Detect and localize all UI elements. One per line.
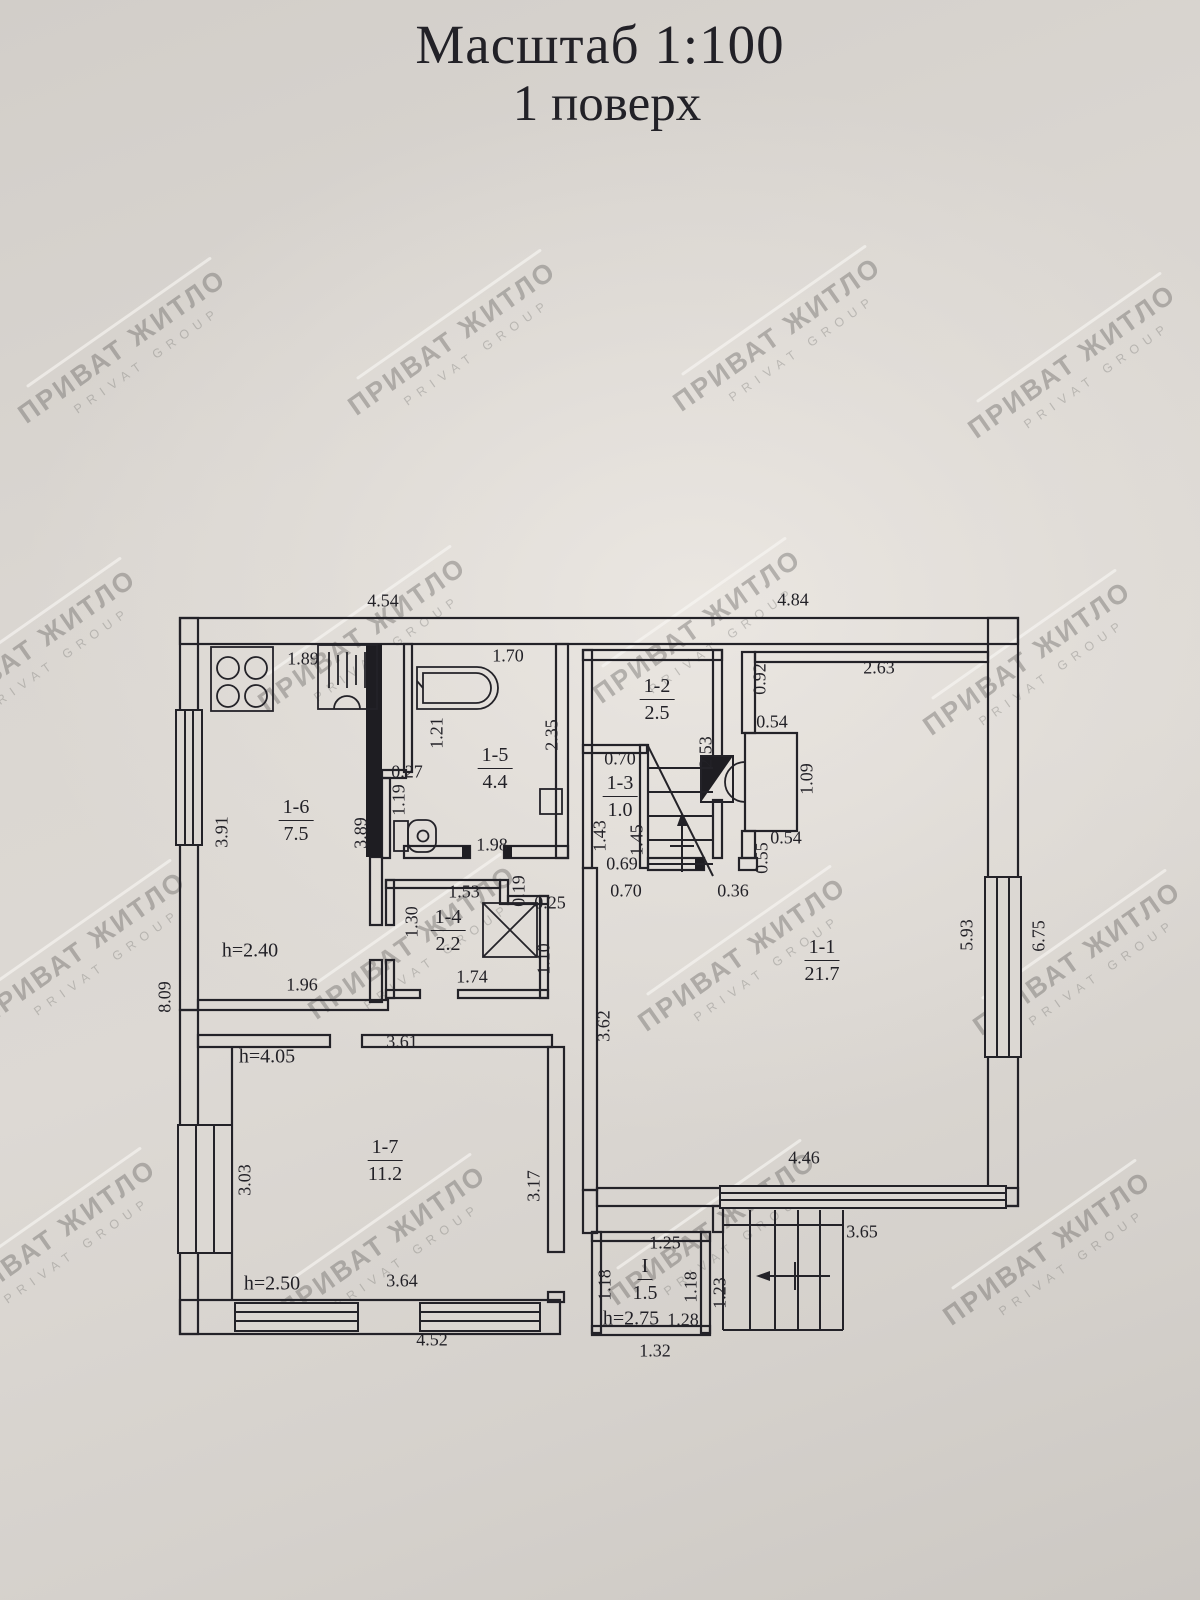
bathtub-icon xyxy=(417,667,498,709)
window-room7-west xyxy=(178,1125,232,1253)
dimension-label: 4.54 xyxy=(367,591,399,612)
room-area: 21.7 xyxy=(805,961,840,986)
dimension-label: 2.35 xyxy=(542,719,563,751)
dimension-label: 3.03 xyxy=(235,1164,256,1196)
ceiling-height-label: h=4.05 xyxy=(239,1046,295,1069)
dimension-label: 4.46 xyxy=(788,1148,820,1169)
room-number: 1-7 xyxy=(368,1136,403,1161)
dimension-label: 3.17 xyxy=(524,1170,545,1202)
dimension-label: 4.52 xyxy=(416,1330,448,1351)
dimension-label: 0.36 xyxy=(717,881,749,902)
floor-plan-drawing xyxy=(0,0,1200,1600)
window-room7-south-left xyxy=(235,1303,358,1331)
dimension-label: 3.64 xyxy=(386,1271,418,1292)
dimension-label: 1.19 xyxy=(389,784,410,816)
dimension-label: 1.89 xyxy=(287,649,319,670)
dimension-label: 0.70 xyxy=(604,749,636,770)
dimension-label: 6.75 xyxy=(1029,920,1050,952)
room-number: 1-2 xyxy=(640,675,675,700)
room-number: 1-3 xyxy=(603,772,638,797)
dimension-label: 1.98 xyxy=(476,835,508,856)
dimension-label: 0.55 xyxy=(752,842,773,874)
room-label: 1-42.2 xyxy=(431,906,466,956)
ceiling-height-label: h=2.50 xyxy=(244,1273,300,1296)
room-number: 1-6 xyxy=(279,796,314,821)
room-number: 1-4 xyxy=(431,906,466,931)
dimension-label: 1.21 xyxy=(427,717,448,749)
dimension-label: 0.54 xyxy=(756,712,788,733)
entry-direction-arrow xyxy=(756,1271,770,1281)
dimension-label: 1.30 xyxy=(402,906,423,938)
dimension-label: 1.74 xyxy=(456,967,488,988)
dimension-label: 1.28 xyxy=(667,1310,699,1331)
room-label: 1-711.2 xyxy=(368,1136,403,1186)
dimension-label: 0.69 xyxy=(606,854,638,875)
room-area: 4.4 xyxy=(478,769,513,794)
dimension-label: 1.96 xyxy=(286,975,318,996)
ceiling-height-label: h=2.75 xyxy=(603,1308,659,1331)
dimension-label: 3.61 xyxy=(386,1032,418,1053)
room-area: 2.5 xyxy=(640,700,675,725)
window-room1-south xyxy=(720,1186,1006,1208)
dimension-label: 5.93 xyxy=(957,919,978,951)
dimension-label: 1.43 xyxy=(590,820,611,852)
dimension-label: 0.27 xyxy=(391,762,423,783)
dimension-label: 1.23 xyxy=(710,1277,731,1309)
scanned-floor-plan-page: { "title": { "line1": "Масштаб 1:100", "… xyxy=(0,0,1200,1600)
dimension-label: 2.53 xyxy=(696,736,717,768)
ceiling-height-label: h=2.40 xyxy=(222,940,278,963)
dimension-label: 0.70 xyxy=(610,881,642,902)
room-number: I xyxy=(638,1255,653,1280)
dimension-label: 1.18 xyxy=(595,1269,616,1301)
dimension-label: 3.89 xyxy=(351,817,372,849)
dimension-label: 2.63 xyxy=(863,658,895,679)
room-label: 1-67.5 xyxy=(279,796,314,846)
dimension-label: 0.25 xyxy=(534,893,566,914)
room-area: 1.0 xyxy=(603,797,638,822)
dimension-label: 1.09 xyxy=(797,763,818,795)
room-area: 2.2 xyxy=(431,931,466,956)
fireplace-icon xyxy=(725,762,745,802)
dimension-label: 0.54 xyxy=(770,828,802,849)
dimension-label: 3.62 xyxy=(594,1010,615,1042)
room-label: 1-121.7 xyxy=(805,936,840,986)
dimension-label: 3.65 xyxy=(846,1222,878,1243)
dimension-label: 1.70 xyxy=(492,646,524,667)
window-room1-east xyxy=(985,877,1021,1057)
exterior-stairs xyxy=(723,1210,843,1330)
room-number: 1-1 xyxy=(805,936,840,961)
dimension-label: 4.84 xyxy=(777,590,809,611)
dimension-label: 8.09 xyxy=(155,981,176,1013)
dimension-label: 1.53 xyxy=(448,882,480,903)
dimension-label: 3.91 xyxy=(212,816,233,848)
room-number: 1-5 xyxy=(478,744,513,769)
room-area: 1.5 xyxy=(633,1280,658,1305)
dimension-label: 1.10 xyxy=(534,943,555,975)
sink-icon xyxy=(540,789,562,814)
dimension-label: 1.45 xyxy=(627,824,648,856)
toilet-icon xyxy=(394,820,436,852)
dimension-label: 1.25 xyxy=(649,1233,681,1254)
room-label: 1-54.4 xyxy=(478,744,513,794)
dimension-label: 0.92 xyxy=(750,663,771,695)
dimension-label: 0.19 xyxy=(509,875,530,907)
dimension-label: 1.32 xyxy=(639,1341,671,1362)
room-area: 7.5 xyxy=(279,821,314,846)
dimension-label: 1.18 xyxy=(681,1271,702,1303)
solid-wall-marks xyxy=(366,644,733,870)
room-area: 11.2 xyxy=(368,1161,403,1186)
window-room7-south-right xyxy=(420,1303,540,1331)
room-label: 1-22.5 xyxy=(640,675,675,725)
room-label: I1.5 xyxy=(633,1255,658,1305)
vent-shaft-icon xyxy=(483,903,537,957)
stove-icon xyxy=(211,647,273,711)
room-label: 1-31.0 xyxy=(603,772,638,822)
window-kitchen-west xyxy=(176,710,202,845)
